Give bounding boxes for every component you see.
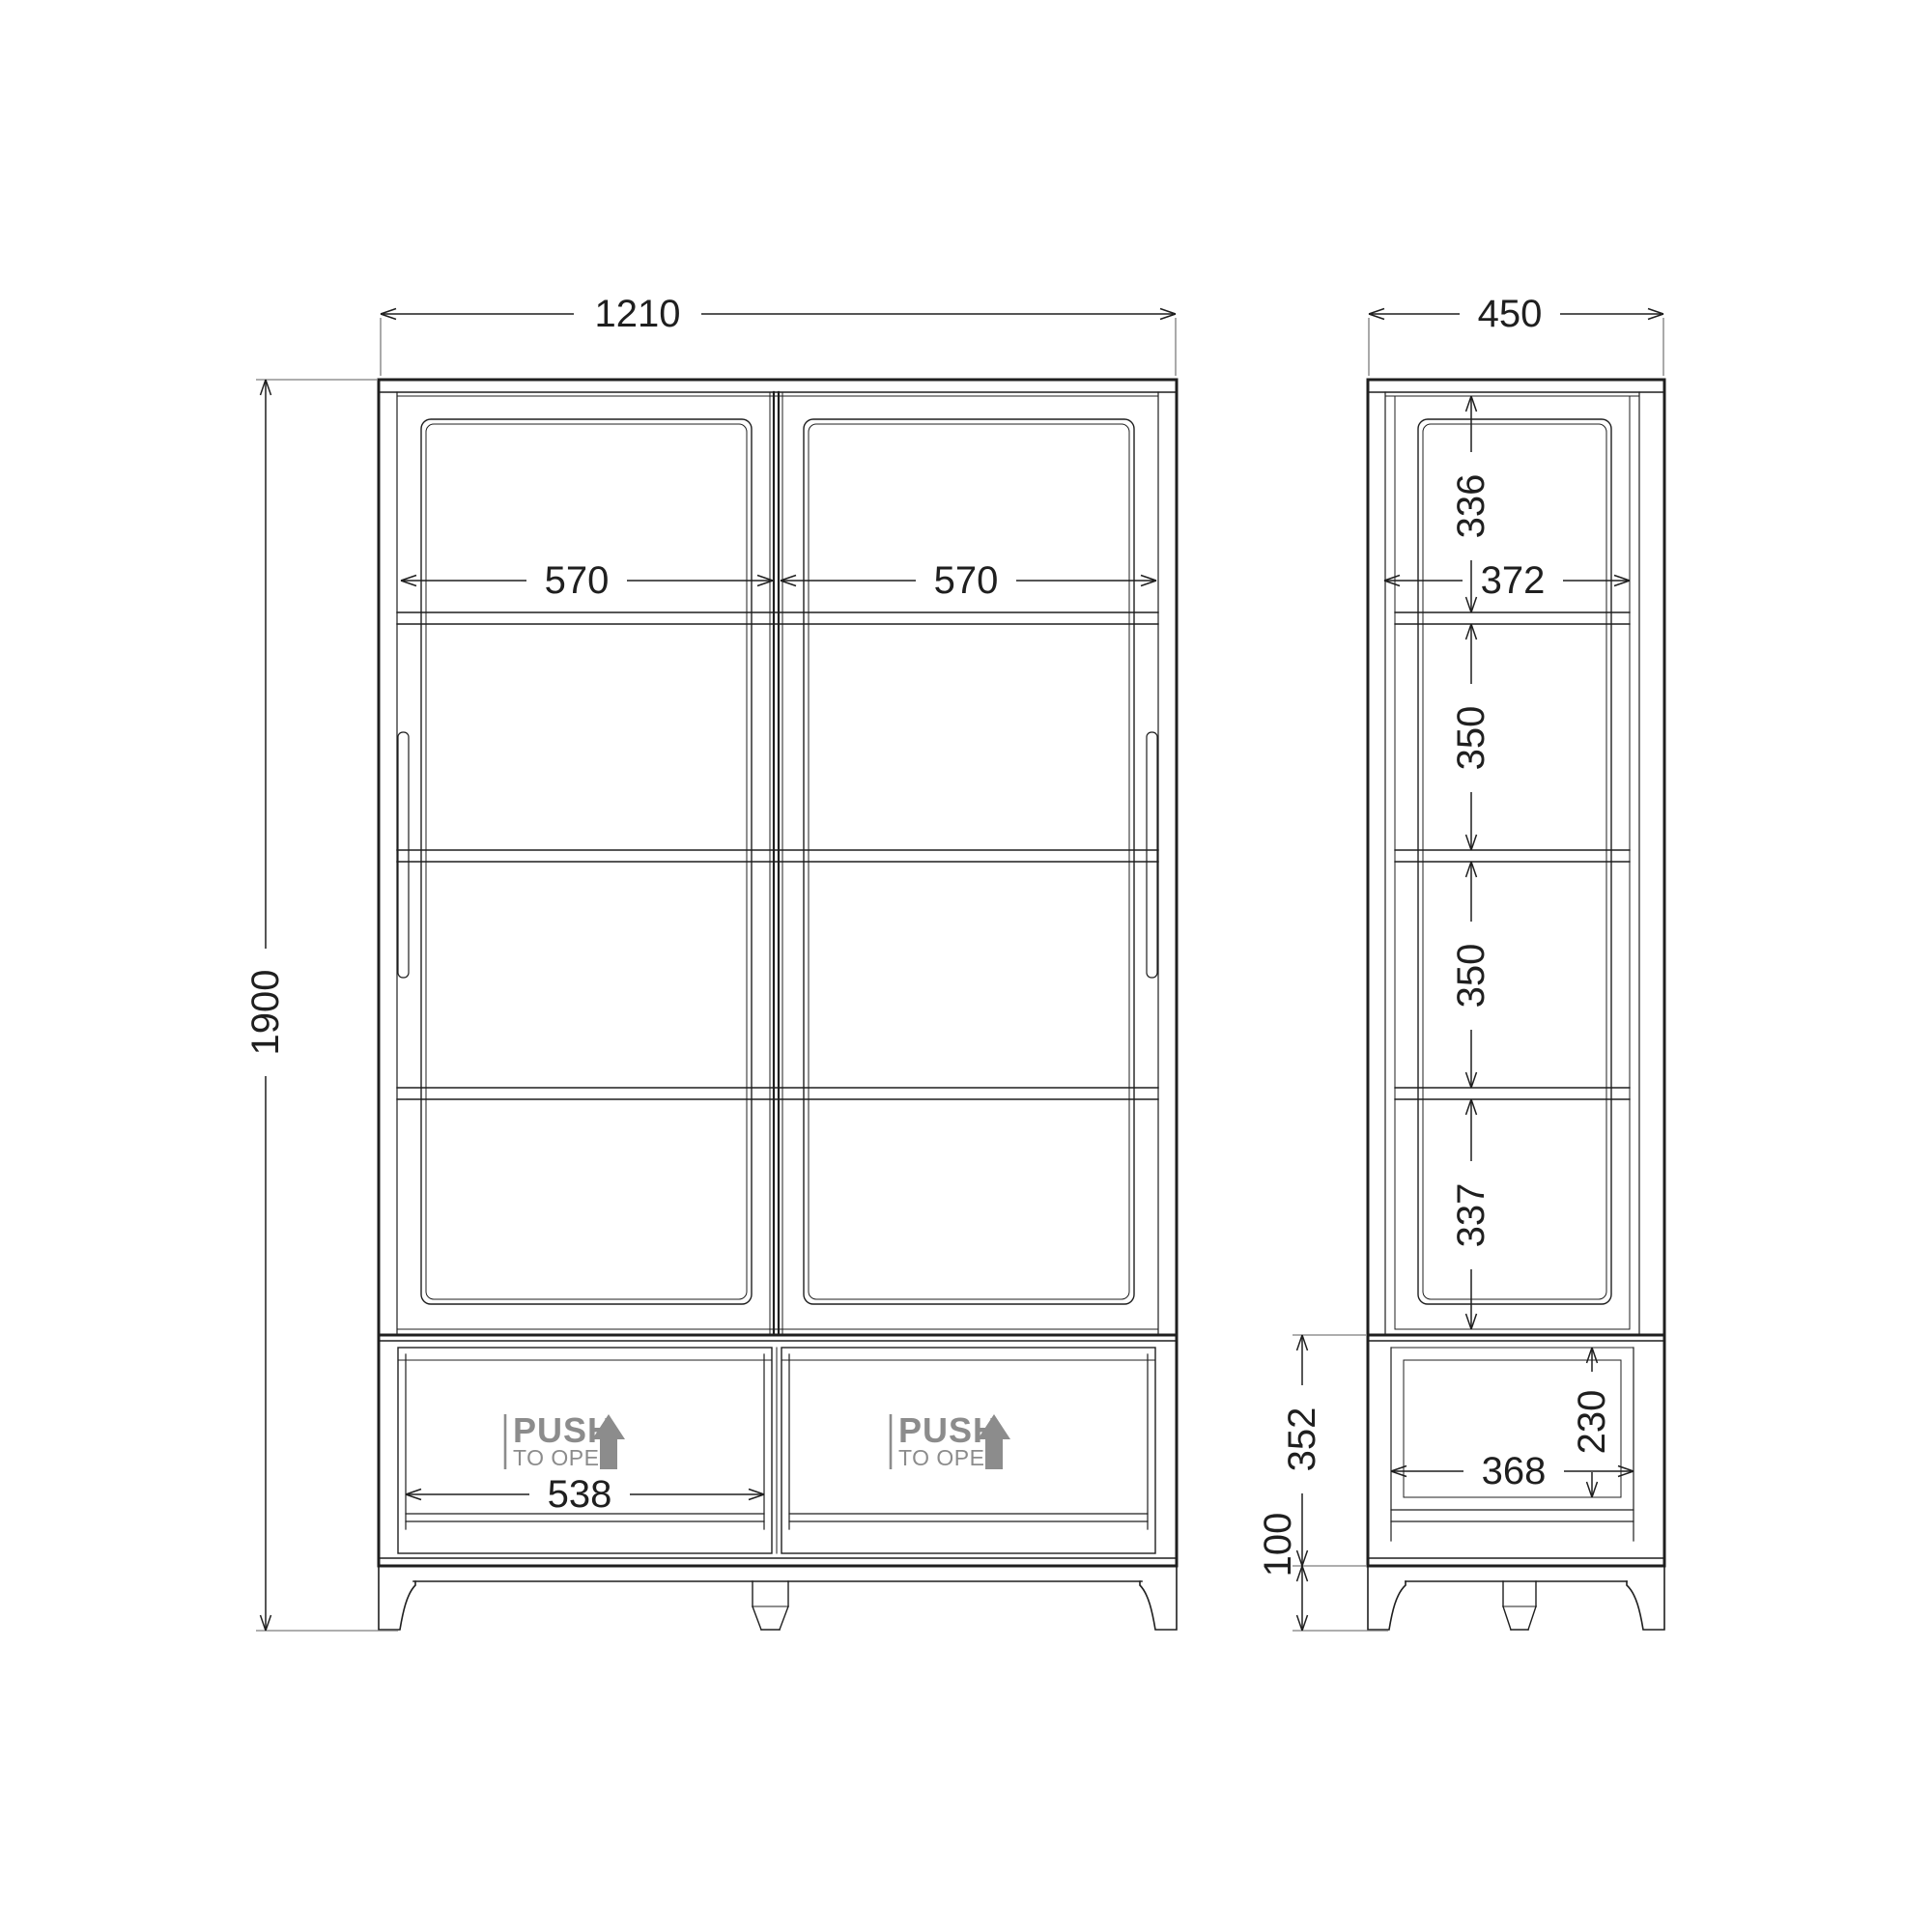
dim-label-shelf-space-mid1: 350 xyxy=(1450,706,1492,771)
push-to-open-label-right: PUSH TO OPEN xyxy=(891,1410,1010,1470)
dim-label-overall-height: 1900 xyxy=(244,970,287,1056)
dim-label-overall-width: 1210 xyxy=(595,293,681,335)
front-right-leg xyxy=(1140,1566,1177,1630)
side-middle-leg xyxy=(1503,1581,1536,1630)
right-door-handle xyxy=(1147,732,1157,978)
dim-label-base-height: 352 xyxy=(1281,1407,1323,1472)
side-back-leg xyxy=(1368,1566,1406,1630)
side-legs xyxy=(1368,1566,1664,1630)
left-door-handle xyxy=(398,732,409,978)
technical-drawing-page: PUSH TO OPEN PUSH TO OPEN xyxy=(0,0,1932,1932)
center-mullion xyxy=(770,392,782,1334)
dim-label-right-door-width: 570 xyxy=(934,559,999,602)
dim-label-drawer-inner-height: 230 xyxy=(1571,1390,1613,1455)
dim-label-drawer-inner-depth: 368 xyxy=(1482,1450,1547,1492)
front-left-leg xyxy=(379,1566,415,1630)
dim-label-inner-depth: 372 xyxy=(1481,559,1546,602)
front-view: PUSH TO OPEN PUSH TO OPEN xyxy=(379,380,1177,1630)
side-front-leg xyxy=(1627,1566,1664,1630)
front-legs xyxy=(379,1566,1177,1630)
dim-label-left-door-width: 570 xyxy=(545,559,610,602)
dim-label-shelf-space-mid2: 350 xyxy=(1450,944,1492,1009)
dim-label-overall-depth: 450 xyxy=(1478,293,1543,335)
dim-label-drawer-width: 538 xyxy=(548,1473,612,1516)
front-middle-leg xyxy=(753,1581,788,1630)
push-to-open-label-left: PUSH TO OPEN xyxy=(505,1410,625,1470)
dim-label-leg-height: 100 xyxy=(1257,1513,1299,1577)
cabinet-technical-drawing: PUSH TO OPEN PUSH TO OPEN xyxy=(0,0,1932,1932)
dim-label-shelf-space-top: 336 xyxy=(1450,474,1492,539)
dim-label-shelf-space-bottom: 337 xyxy=(1450,1183,1492,1248)
side-shelves xyxy=(1395,612,1630,1329)
